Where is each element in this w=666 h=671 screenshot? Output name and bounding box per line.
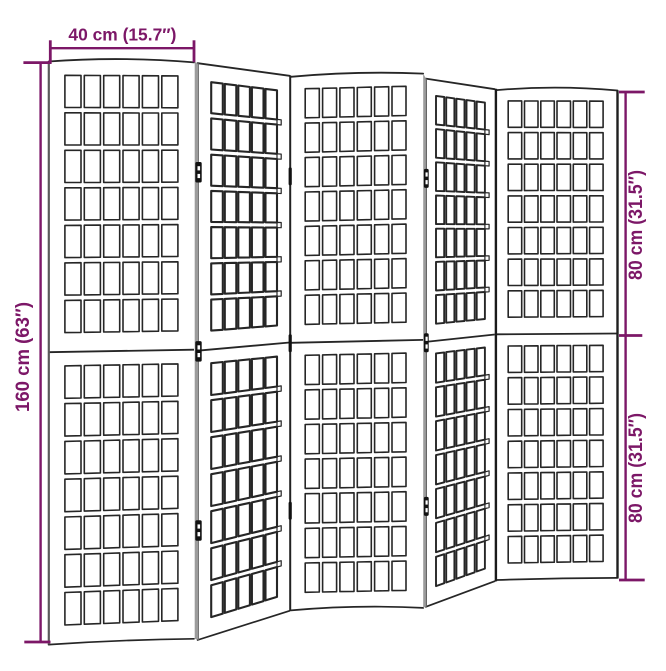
svg-text:40 cm (15.7″): 40 cm (15.7″) <box>68 25 176 45</box>
svg-text:80 cm (31.5″): 80 cm (31.5″) <box>626 170 647 280</box>
svg-text:160 cm (63″): 160 cm (63″) <box>13 302 34 412</box>
svg-text:80 cm (31.5″): 80 cm (31.5″) <box>626 413 647 523</box>
